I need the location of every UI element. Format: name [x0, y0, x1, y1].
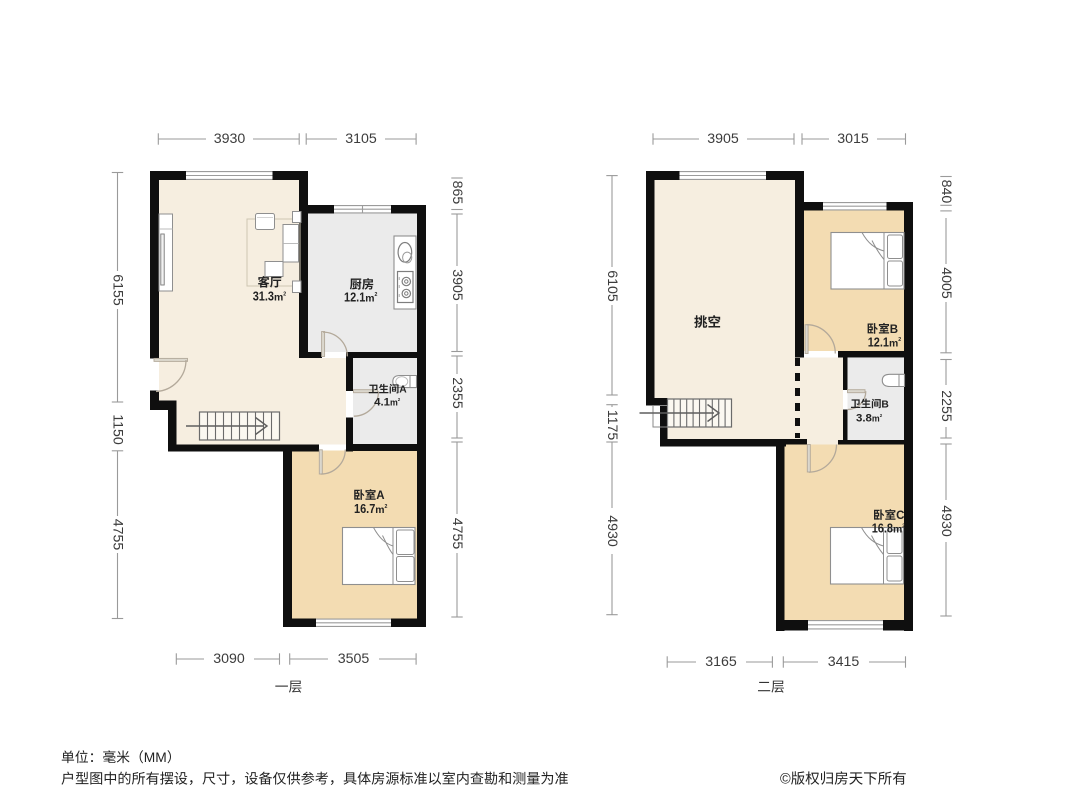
svg-text:3905: 3905	[449, 269, 465, 301]
svg-text:6105: 6105	[604, 270, 620, 302]
svg-text:B: B	[890, 324, 898, 336]
svg-text:4755: 4755	[110, 519, 126, 551]
svg-text:1175: 1175	[604, 410, 620, 441]
svg-text:840: 840	[938, 180, 954, 204]
svg-text:©: ©	[780, 772, 791, 788]
svg-text:2: 2	[902, 523, 905, 529]
svg-text:m: m	[872, 413, 880, 423]
svg-text:1150: 1150	[110, 414, 126, 445]
svg-text:m: m	[274, 293, 283, 304]
svg-text:m: m	[365, 293, 374, 304]
svg-text:4.1: 4.1	[374, 397, 390, 409]
svg-text:3905: 3905	[707, 131, 739, 147]
svg-text:3505: 3505	[338, 651, 370, 667]
svg-text:4930: 4930	[938, 505, 954, 537]
svg-text:m: m	[893, 525, 902, 536]
svg-text:4930: 4930	[604, 515, 620, 547]
svg-text:A: A	[399, 385, 407, 396]
svg-text:2: 2	[375, 292, 378, 298]
svg-text:3015: 3015	[837, 131, 869, 147]
svg-text:16.7: 16.7	[354, 501, 375, 516]
svg-text:31.3: 31.3	[253, 289, 274, 304]
svg-text:12.1: 12.1	[868, 334, 889, 349]
svg-text:3930: 3930	[214, 131, 246, 147]
svg-text:2: 2	[283, 291, 286, 297]
svg-text:m: m	[889, 338, 898, 349]
svg-text:12.1: 12.1	[344, 289, 365, 304]
svg-text:865: 865	[449, 181, 465, 205]
svg-text:3165: 3165	[705, 654, 737, 670]
svg-text:m: m	[375, 505, 384, 516]
svg-text:6155: 6155	[110, 274, 126, 306]
svg-text:2355: 2355	[449, 377, 465, 409]
svg-text:3.8: 3.8	[856, 412, 872, 424]
svg-text:4005: 4005	[938, 267, 954, 299]
svg-text:3415: 3415	[828, 654, 860, 670]
svg-text:B: B	[881, 399, 888, 410]
svg-text:2255: 2255	[938, 390, 954, 422]
svg-text:2: 2	[898, 337, 901, 343]
svg-text:M: M	[144, 750, 156, 765]
svg-text:M: M	[155, 750, 167, 765]
svg-text:2: 2	[385, 504, 388, 510]
svg-text:4755: 4755	[449, 518, 465, 550]
svg-text:m: m	[390, 398, 398, 408]
svg-text:A: A	[376, 490, 384, 502]
svg-text:C: C	[896, 510, 904, 522]
svg-text:3090: 3090	[213, 651, 245, 667]
svg-text:3105: 3105	[345, 131, 377, 147]
svg-text:16.8: 16.8	[872, 521, 893, 536]
